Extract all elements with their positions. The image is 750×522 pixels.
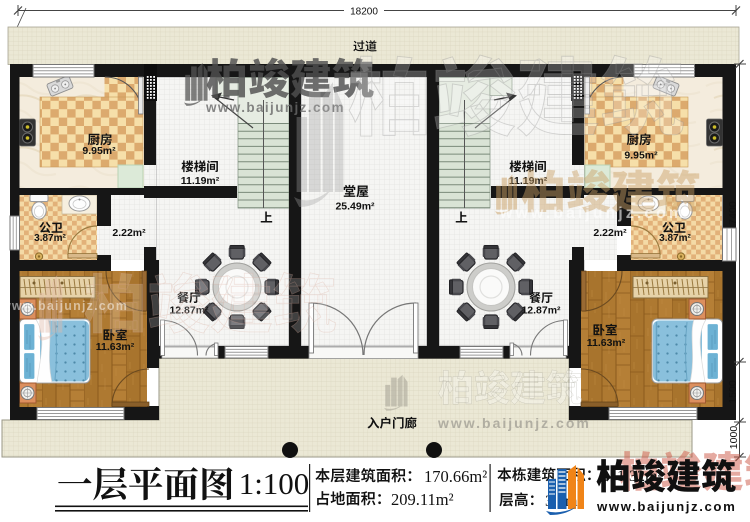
svg-text:2.22m²: 2.22m² [112, 227, 146, 239]
svg-text:3.87m²: 3.87m² [659, 233, 691, 244]
svg-text:www.baijunjz.com: www.baijunjz.com [596, 499, 736, 514]
svg-text:12.87m²: 12.87m² [521, 305, 561, 317]
svg-text:11.63m²: 11.63m² [587, 337, 626, 349]
svg-text:1000: 1000 [728, 426, 740, 450]
svg-text:www.baijunjz.com: www.baijunjz.com [437, 415, 591, 431]
svg-text:11.63m²: 11.63m² [96, 341, 135, 353]
svg-text:11.19m²: 11.19m² [181, 175, 220, 187]
svg-text:3.87m²: 3.87m² [34, 233, 66, 244]
svg-text:7400: 7400 [727, 201, 739, 225]
svg-text:209.11m²: 209.11m² [391, 490, 454, 509]
svg-text:170.66m²: 170.66m² [424, 467, 487, 486]
svg-text:1:100: 1:100 [239, 466, 310, 501]
svg-text:18200: 18200 [350, 7, 378, 18]
svg-text:www.baijunjz.com: www.baijunjz.com [0, 299, 128, 313]
svg-text:9.95m²: 9.95m² [82, 145, 116, 157]
svg-text:www.baijunjz.com: www.baijunjz.com [499, 205, 686, 222]
svg-text:25.49m²: 25.49m² [335, 201, 375, 213]
svg-text:1500: 1500 [727, 380, 739, 404]
svg-text:2.22m²: 2.22m² [593, 227, 627, 239]
svg-text:9.95m²: 9.95m² [624, 150, 658, 162]
